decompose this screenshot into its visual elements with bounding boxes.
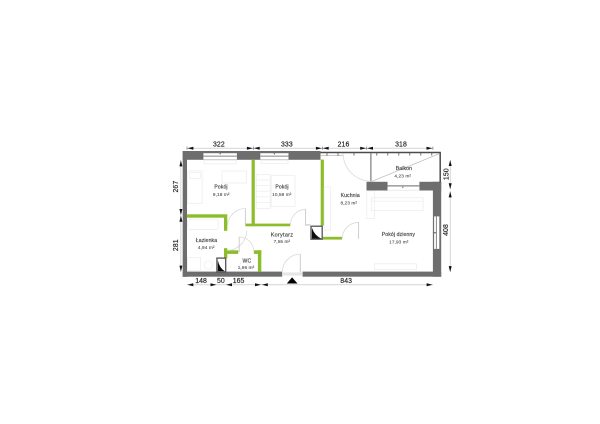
- svg-text:281: 281: [173, 239, 180, 251]
- svg-text:Łazienka: Łazienka: [196, 238, 217, 244]
- svg-text:WC: WC: [243, 258, 252, 264]
- svg-text:1,66 m²: 1,66 m²: [238, 265, 255, 270]
- svg-text:8,23 m²: 8,23 m²: [341, 201, 358, 206]
- svg-text:322: 322: [213, 142, 225, 149]
- svg-text:333: 333: [281, 142, 293, 149]
- svg-text:17,93 m²: 17,93 m²: [389, 240, 409, 245]
- svg-text:318: 318: [395, 142, 407, 149]
- svg-text:Korytarz: Korytarz: [271, 232, 293, 238]
- svg-text:267: 267: [173, 181, 180, 193]
- svg-text:Kuchnia: Kuchnia: [341, 193, 360, 199]
- svg-text:50: 50: [217, 278, 225, 285]
- svg-text:Pokój dzienny: Pokój dzienny: [382, 232, 416, 238]
- svg-text:4,94 m²: 4,94 m²: [198, 245, 215, 250]
- svg-text:Balkon: Balkon: [396, 166, 412, 172]
- svg-text:148: 148: [195, 278, 207, 285]
- svg-text:4,23 m²: 4,23 m²: [394, 173, 411, 178]
- svg-text:165: 165: [233, 278, 245, 285]
- svg-text:10,59 m²: 10,59 m²: [272, 192, 292, 197]
- svg-text:408: 408: [443, 224, 450, 236]
- svg-text:843: 843: [340, 278, 352, 285]
- svg-text:150: 150: [443, 168, 450, 180]
- svg-text:Pokój: Pokój: [275, 184, 288, 190]
- svg-text:216: 216: [338, 142, 350, 149]
- svg-text:9,18 m²: 9,18 m²: [213, 192, 230, 197]
- svg-text:7,55 m²: 7,55 m²: [274, 239, 291, 244]
- svg-text:Pokój: Pokój: [214, 184, 227, 190]
